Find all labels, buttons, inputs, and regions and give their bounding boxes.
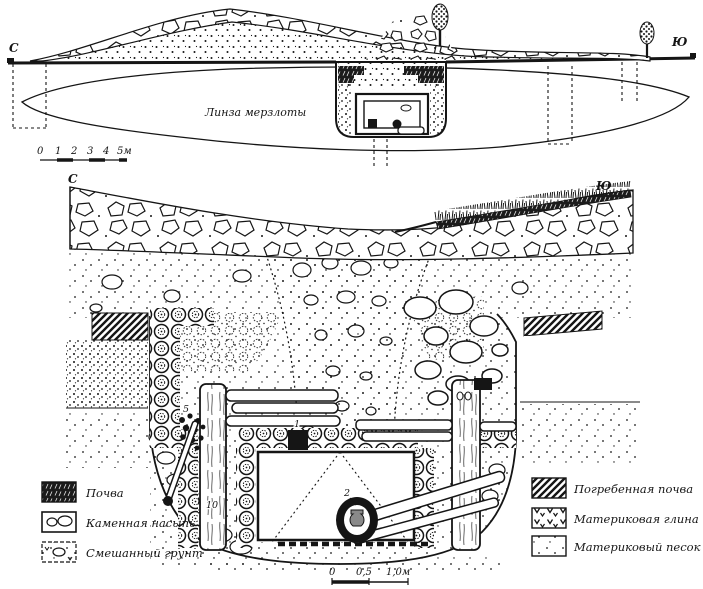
tree [640,22,654,58]
legend-item-virgin-clay: Материковая глина [532,508,699,528]
find-label-1: 1 [294,419,300,430]
profile-burial-pit [336,62,446,137]
scale-tick: 2 [70,146,77,157]
scale-tick: 0 [329,567,336,578]
legend-label: Смешанный грунт [86,546,203,560]
scale-tick: 1 [55,146,61,157]
profile-north-mark: С [9,41,19,55]
legend-right: Погребенная почва Материковая глина Мате… [532,478,701,556]
scale-tick: 0 [37,146,44,157]
virgin-sand-right [522,404,640,466]
buried-soil-left [92,313,148,340]
legend-label: Погребенная почва [573,482,693,496]
left-post [200,384,226,550]
legend-label: Материковая глина [573,512,699,526]
profile-scale-bar: 0 1 2 3 4 5м [37,146,132,160]
section-south-mark: Ю [595,179,611,193]
find-label-10: 10 [206,500,218,511]
section-north-mark: С [68,172,78,186]
legend-item-buried-soil: Погребенная почва [532,478,693,498]
find-label-5: 5 [183,404,189,415]
scale-tick: 5м [117,146,132,157]
profile-figure: Линза мерзлоты [7,4,696,166]
virgin-sand-left [66,340,148,408]
ground-line-end-right [690,53,696,58]
legend-label: Материковый песок [573,540,701,554]
legend-item-soil: Почва [42,482,124,502]
stone-box-find [288,430,308,450]
legend-label: Каменная насыпь [85,516,195,530]
scale-tick: 3 [87,146,93,157]
scale-tick: 4 [102,146,109,157]
legend-item-virgin-sand: Материковый песок [532,536,701,556]
find-label-2: 2 [343,488,350,499]
vessel-find [336,497,378,543]
right-post [452,380,480,550]
profile-south-mark: Ю [671,35,687,49]
scale-tick: 1,0м [386,567,410,578]
legend-label: Почва [85,486,124,500]
scale-tick: 0,5 [356,567,372,578]
lens-label: Линза мерзлоты [204,106,306,119]
diagram-canvas: Линза мерзлоты [0,0,703,589]
blank-right [524,336,636,400]
diagram-page: Линза мерзлоты [0,0,703,589]
ground-line-end-left [7,58,14,63]
